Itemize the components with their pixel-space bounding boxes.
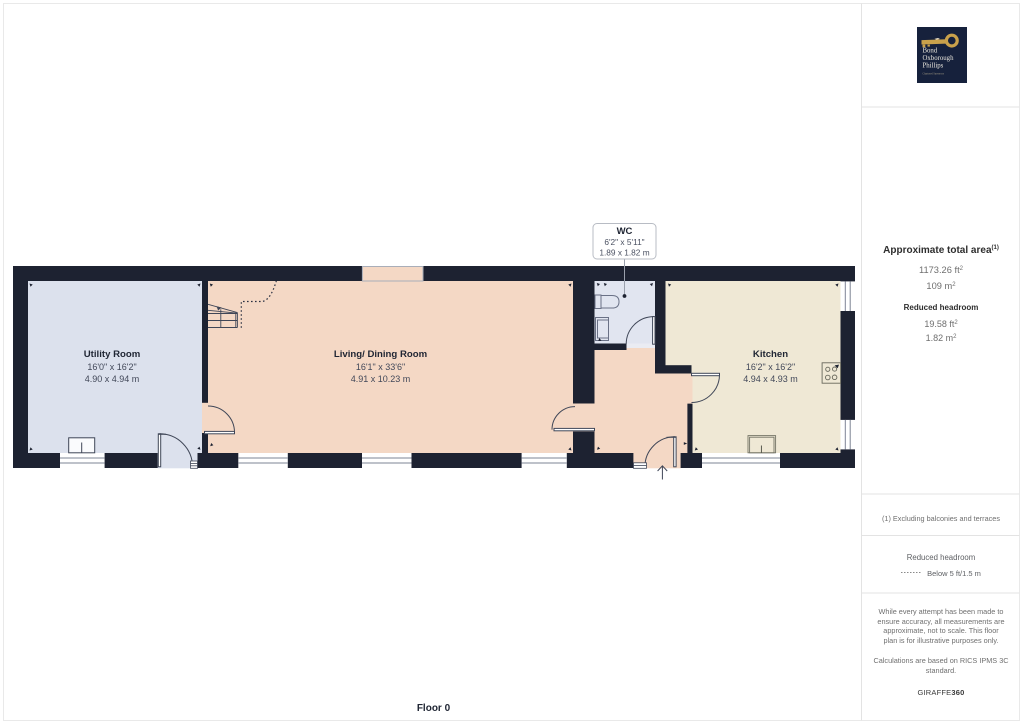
svg-text:Oxborough: Oxborough (923, 55, 955, 62)
svg-text:Chartered Surveyors: Chartered Surveyors (923, 72, 944, 75)
svg-text:16'2" x 16'2": 16'2" x 16'2" (746, 362, 795, 372)
svg-text:Floor 0: Floor 0 (417, 703, 451, 714)
svg-text:16'1" x 33'6": 16'1" x 33'6" (356, 362, 405, 372)
svg-text:Bond: Bond (923, 47, 938, 54)
svg-text:6'2" x 5'11": 6'2" x 5'11" (604, 237, 644, 247)
svg-text:4.94 x 4.93 m: 4.94 x 4.93 m (743, 374, 798, 384)
svg-text:Living/ Dining Room: Living/ Dining Room (334, 349, 427, 360)
svg-text:Phillips: Phillips (923, 63, 944, 70)
svg-text:16'0" x 16'2": 16'0" x 16'2" (87, 362, 136, 372)
svg-text:Utility Room: Utility Room (84, 349, 141, 360)
svg-text:Kitchen: Kitchen (753, 349, 788, 360)
svg-text:1.89 x 1.82 m: 1.89 x 1.82 m (599, 248, 649, 258)
svg-text:4.90 x 4.94 m: 4.90 x 4.94 m (85, 374, 140, 384)
svg-text:WC: WC (617, 226, 633, 237)
svg-text:4.91 x 10.23 m: 4.91 x 10.23 m (351, 374, 411, 384)
